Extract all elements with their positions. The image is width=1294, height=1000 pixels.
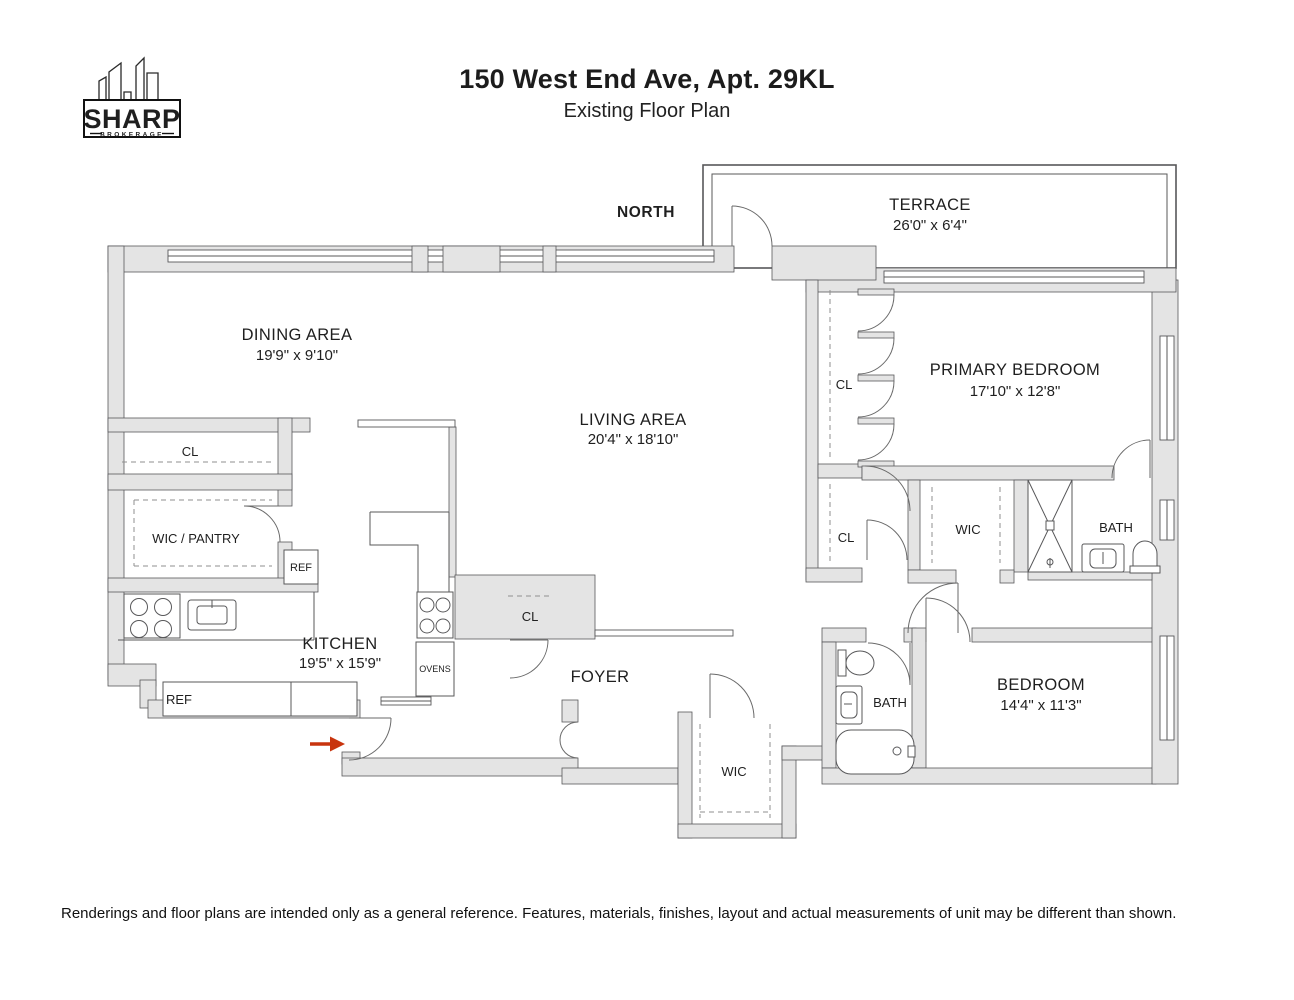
- wall-segment: [822, 628, 866, 642]
- wall-segment: [772, 246, 876, 280]
- wall-segment: [449, 427, 456, 577]
- wic-pantry-label: WIC / PANTRY: [152, 531, 240, 546]
- page-subtitle: Existing Floor Plan: [0, 100, 1294, 123]
- door-arc: [1112, 440, 1150, 478]
- floor-plan-page: 150 West End Ave, Apt. 29KL Existing Flo…: [0, 0, 1294, 1000]
- sink-icon: [836, 686, 862, 724]
- logo-tagline: BROKERAGE: [100, 132, 164, 139]
- room-dims-dining: 19'9" x 9'10": [256, 347, 338, 364]
- closet-label: CL: [182, 444, 199, 459]
- door-arc: [510, 640, 548, 678]
- bathtub-icon: [836, 730, 915, 774]
- door-arc: [710, 674, 754, 718]
- room-label-dining: DINING AREA: [242, 326, 353, 344]
- closet-label: CL: [836, 377, 853, 392]
- page-title: 150 West End Ave, Apt. 29KL: [0, 64, 1294, 95]
- window: [1160, 336, 1174, 440]
- wic-label: WIC: [721, 764, 746, 779]
- wall-segment: [562, 700, 578, 722]
- closet-label: CL: [522, 609, 539, 624]
- refrigerator-box: [163, 682, 357, 716]
- wall-segment: [972, 628, 1156, 642]
- wall-segment: [342, 758, 578, 776]
- door-arc: [926, 598, 970, 642]
- counter-half-wall: [595, 630, 733, 636]
- sink-icon: [1082, 544, 1124, 572]
- wall-segment: [908, 480, 920, 570]
- toilet-icon: [838, 650, 874, 676]
- wall-segment: [1014, 480, 1028, 572]
- room-dims-primary-bedroom: 17'10" x 12'8": [970, 383, 1061, 400]
- wall-segment: [818, 464, 862, 478]
- wall-segment: [108, 474, 292, 490]
- kitchen-counter-line: [370, 512, 449, 592]
- wall-segment: [806, 568, 862, 582]
- wall-segment: [858, 289, 894, 295]
- room-label-foyer: FOYER: [571, 668, 630, 686]
- stove-burners-icon: [417, 592, 453, 638]
- entry-arrow-icon: [310, 737, 345, 752]
- room-dims-kitchen: 19'5" x 15'9": [299, 655, 381, 672]
- room-label-living: LIVING AREA: [579, 411, 686, 429]
- room-label-kitchen: KITCHEN: [302, 635, 377, 653]
- room-label-terrace: TERRACE: [889, 196, 971, 214]
- door-arc: [908, 583, 958, 633]
- wall-segment: [858, 418, 894, 424]
- room-label-primary-bedroom: PRIMARY BEDROOM: [930, 361, 1100, 379]
- window: [381, 697, 431, 705]
- wic-label: WIC: [955, 522, 980, 537]
- wall-segment: [862, 466, 1114, 480]
- bath-label: BATH: [1099, 520, 1133, 535]
- wall-segment: [678, 824, 796, 838]
- refrigerator-label: REF: [166, 692, 192, 707]
- door-arc: [560, 722, 578, 758]
- window: [1160, 636, 1174, 740]
- wall-segment: [678, 712, 692, 838]
- wall-segment: [806, 280, 818, 580]
- wall-segment: [455, 575, 595, 639]
- wall-segment: [908, 570, 956, 583]
- wall-segment: [858, 332, 894, 338]
- refrigerator-label: REF: [290, 562, 312, 574]
- room-dims-terrace: 26'0" x 6'4": [893, 217, 967, 234]
- shower-icon: [1028, 480, 1072, 572]
- wall-segment: [278, 418, 292, 506]
- counter-half-wall: [358, 420, 455, 427]
- room-dims-bedroom: 14'4" x 11'3": [1000, 697, 1081, 714]
- disclaimer-text: Renderings and floor plans are intended …: [61, 903, 1237, 925]
- door-arc: [867, 520, 907, 560]
- wall-segment: [562, 768, 678, 784]
- bath-label: BATH: [873, 695, 907, 710]
- north-label: NORTH: [617, 204, 675, 221]
- wall-segment: [1000, 570, 1014, 583]
- page-header: 150 West End Ave, Apt. 29KL Existing Flo…: [0, 64, 1294, 123]
- fixtures: [118, 480, 1160, 774]
- sink-icon: [188, 600, 236, 630]
- door-arc: [244, 506, 280, 542]
- window: [1160, 500, 1174, 540]
- room-dims-living: 20'4" x 18'10": [588, 431, 679, 448]
- ovens-label: OVENS: [419, 664, 451, 674]
- wall-segment: [822, 642, 836, 768]
- closet-label: CL: [838, 530, 855, 545]
- room-label-bedroom: BEDROOM: [997, 676, 1085, 694]
- window: [884, 271, 1144, 283]
- floor-plan-drawing: SHARP BROKERAGE: [0, 0, 1294, 1000]
- stove-burners-icon: [124, 594, 180, 638]
- wall-segment: [858, 375, 894, 381]
- wall-segment: [108, 246, 124, 680]
